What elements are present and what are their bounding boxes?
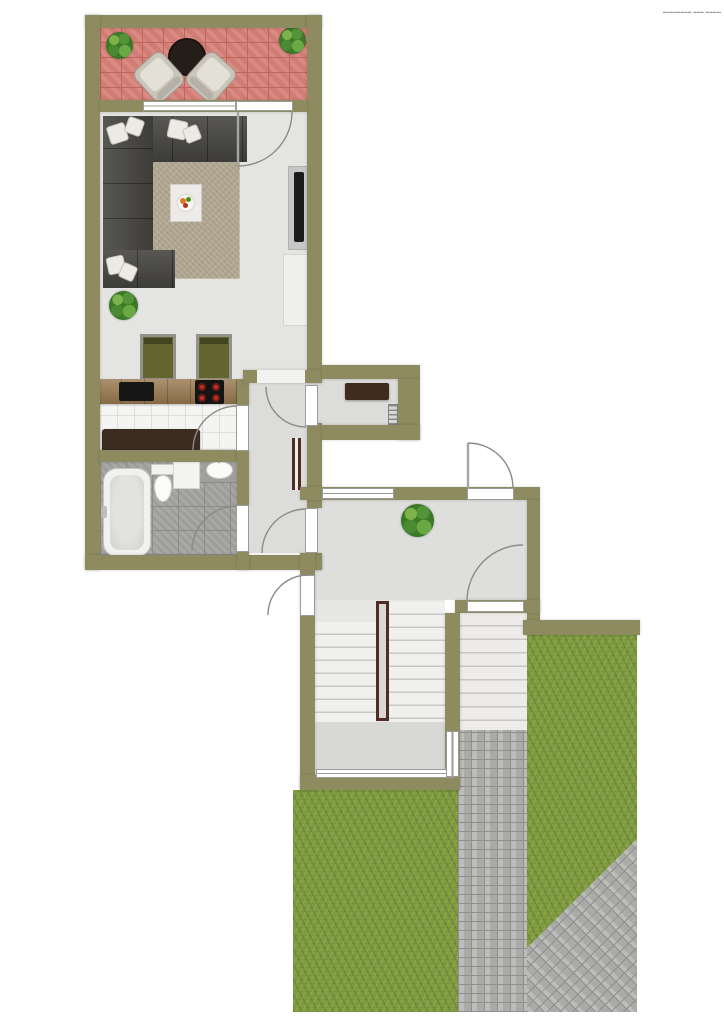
hall-door-leaf <box>305 385 318 426</box>
bathtub-faucet <box>101 506 107 518</box>
sideboard-cabinet <box>283 254 309 326</box>
fruit <box>186 197 191 202</box>
tv <box>294 172 304 242</box>
wall <box>527 500 540 635</box>
burner <box>198 383 206 391</box>
toilet-tank <box>151 464 175 475</box>
burner <box>198 394 206 402</box>
wall <box>237 450 249 505</box>
floor-plan: ▂▂▂▂▂▂▂▂ ▂▂▂ ▂▂▂▂▂▂▂▂ <box>0 0 724 1024</box>
watermark-text: ▂▂▂▂▂▂▂▂ ▂▂▂ ▂▂▂▂▂▂▂▂ <box>663 8 721 13</box>
wall <box>307 15 322 383</box>
kitchen-door <box>236 405 249 451</box>
entry-door <box>467 488 514 500</box>
burner <box>212 383 220 391</box>
paved-path <box>458 730 527 1012</box>
garden-lawn-left <box>293 790 458 1012</box>
shower-tray <box>173 459 200 489</box>
landing-side-door <box>300 575 315 616</box>
plant-balcony-left <box>106 32 133 59</box>
entry-door-arc <box>468 443 513 488</box>
plant-landing <box>401 504 434 537</box>
lower-stair-landing <box>315 722 445 775</box>
stairwell-side-door <box>446 731 459 777</box>
storage-bench <box>102 429 200 452</box>
kitchen-sink <box>119 382 154 401</box>
plant-living-room <box>109 291 138 320</box>
wall <box>237 380 249 405</box>
stair-flight-right <box>389 602 445 722</box>
dining-chair-right <box>196 334 232 381</box>
wall <box>322 365 420 379</box>
nook-radiator <box>388 404 398 425</box>
stairwell-window <box>316 769 454 778</box>
bathtub <box>103 468 151 557</box>
landing-window <box>322 488 394 499</box>
exterior-stairs <box>460 613 527 730</box>
living-hall-doorway <box>257 370 305 383</box>
wall <box>237 551 249 570</box>
balcony-door <box>236 101 293 111</box>
bathroom-door <box>236 505 249 552</box>
dining-chair-left <box>140 334 176 381</box>
wall <box>85 555 322 570</box>
wall <box>85 15 322 28</box>
wall <box>85 15 100 570</box>
nook-sideboard <box>345 383 389 400</box>
washbasin <box>206 461 233 479</box>
wall <box>100 450 245 462</box>
garden-wall <box>523 620 640 635</box>
stair-handrail <box>376 601 389 721</box>
plant-balcony-right <box>279 27 306 54</box>
garden-stairs-door <box>467 601 524 612</box>
hallway-radiator <box>292 438 301 490</box>
burner <box>212 394 220 402</box>
fruit <box>183 203 188 208</box>
balcony-window <box>143 101 236 111</box>
wall <box>322 425 420 440</box>
stair-flight-left <box>315 622 377 722</box>
hall-landing-door <box>305 508 318 553</box>
